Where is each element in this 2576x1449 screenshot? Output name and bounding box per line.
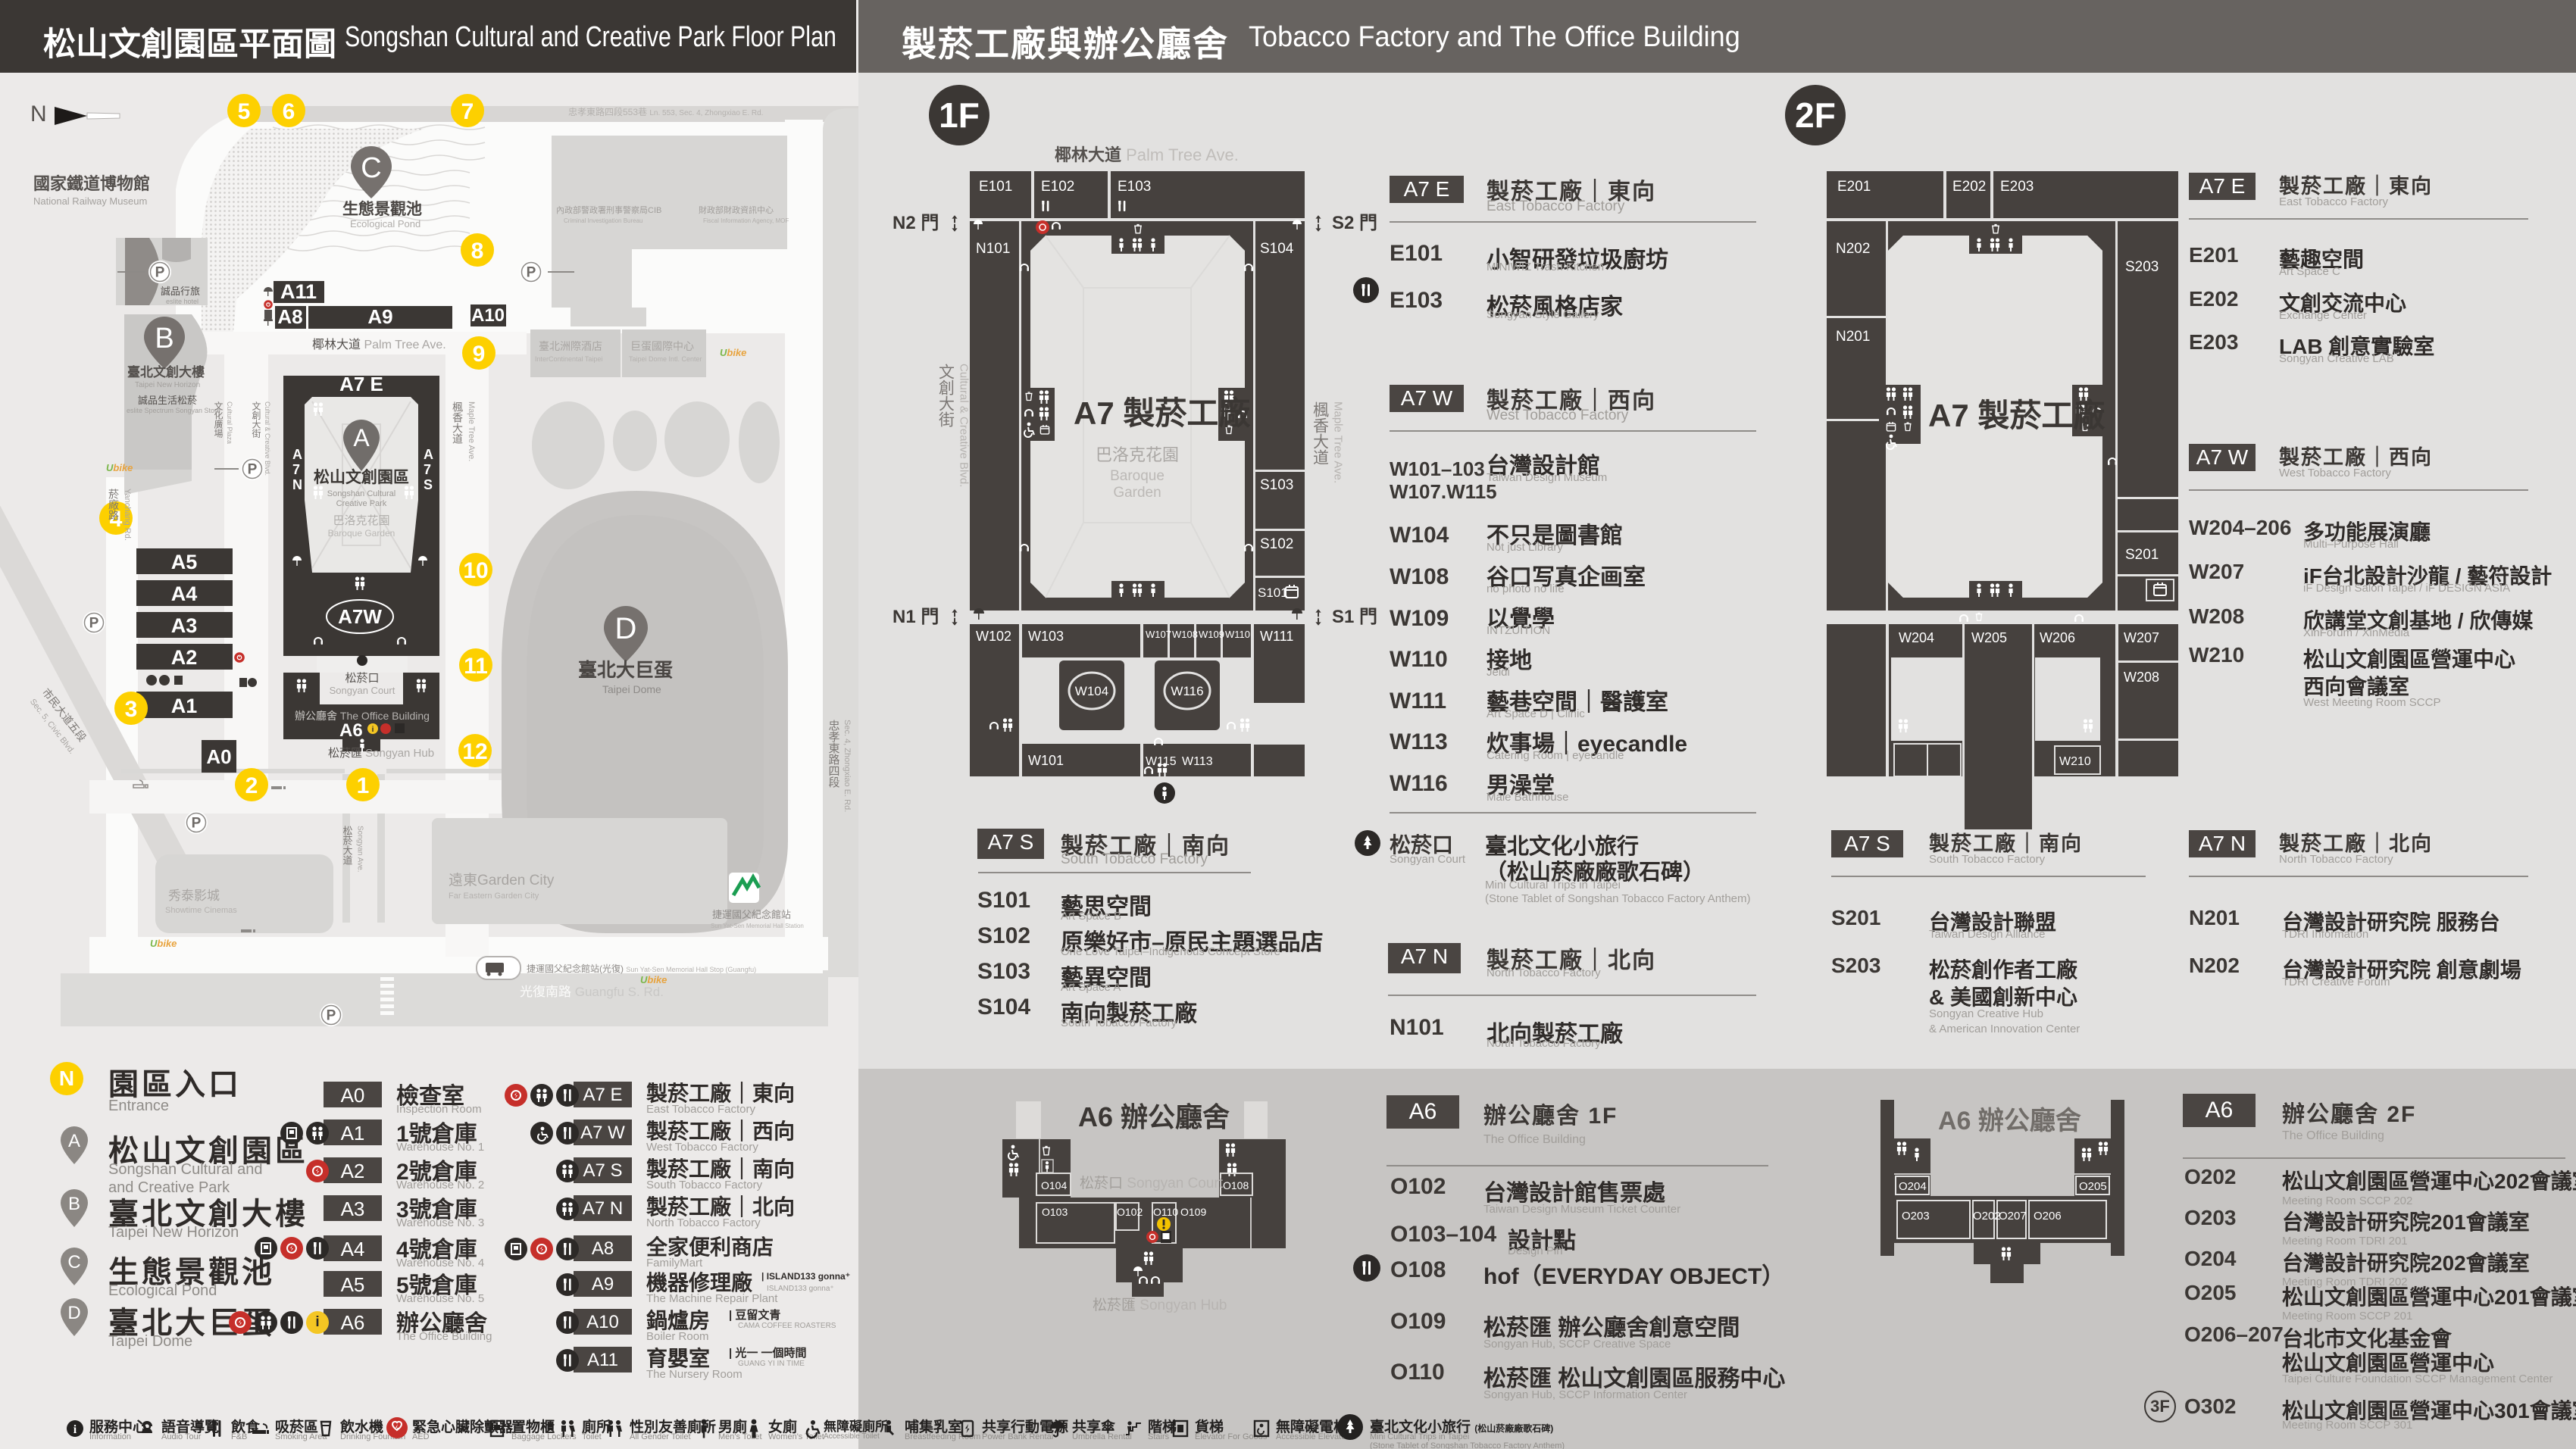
svg-text:S101: S101 xyxy=(1258,586,1288,600)
svg-text:5: 5 xyxy=(238,99,251,124)
svg-text:O103: O103 xyxy=(1042,1206,1068,1218)
svg-text:eslite hotel: eslite hotel xyxy=(166,298,199,305)
svg-text:W207: W207 xyxy=(2124,630,2159,645)
svg-text:Baroque Garden: Baroque Garden xyxy=(328,528,395,539)
svg-text:12: 12 xyxy=(462,739,487,764)
svg-text:Songyan Ave.: Songyan Ave. xyxy=(356,826,364,873)
svg-text:捷運國父紀念館站: 捷運國父紀念館站 xyxy=(712,909,791,920)
svg-text:W205: W205 xyxy=(1971,630,2007,645)
svg-text:O109: O109 xyxy=(1180,1206,1206,1218)
svg-text:O206: O206 xyxy=(2034,1210,2062,1223)
svg-text:7: 7 xyxy=(424,462,431,477)
svg-text:松菸大道: 松菸大道 xyxy=(342,826,353,865)
svg-text:文創大街: 文創大街 xyxy=(251,401,261,438)
svg-text:C: C xyxy=(361,152,381,184)
svg-text:Far Eastern Garden City: Far Eastern Garden City xyxy=(449,892,539,901)
svg-text:N202: N202 xyxy=(1836,241,1870,257)
svg-text:N1 門: N1 門 xyxy=(893,607,939,627)
svg-text:Taipei Dome Intl. Center: Taipei Dome Intl. Center xyxy=(629,355,702,363)
svg-text:A3: A3 xyxy=(171,614,198,637)
svg-text:國家鐵道博物館: 國家鐵道博物館 xyxy=(33,174,150,193)
svg-text:S203: S203 xyxy=(2125,259,2159,275)
svg-text:Songyan Court: Songyan Court xyxy=(330,685,395,696)
svg-text:A: A xyxy=(292,447,302,462)
svg-text:O204: O204 xyxy=(1899,1180,1927,1193)
svg-text:S2 門: S2 門 xyxy=(1332,213,1377,233)
svg-text:O202: O202 xyxy=(1973,1210,2001,1223)
svg-text:W208: W208 xyxy=(2124,670,2159,685)
svg-text:W107: W107 xyxy=(1146,629,1171,640)
svg-text:秀泰影城: 秀泰影城 xyxy=(168,888,220,903)
svg-text:D: D xyxy=(67,1303,80,1323)
svg-text:忠孝東路四段: 忠孝東路四段 xyxy=(827,720,840,788)
svg-text:O104: O104 xyxy=(1041,1179,1067,1191)
svg-text:S103: S103 xyxy=(1260,477,1293,493)
svg-text:B: B xyxy=(155,323,174,354)
svg-text:N2 門: N2 門 xyxy=(893,213,939,233)
svg-text:松菸口: 松菸口 xyxy=(345,672,379,685)
svg-text:N: N xyxy=(30,101,47,126)
svg-text:2F: 2F xyxy=(1795,95,1836,135)
svg-text:W113: W113 xyxy=(1182,755,1213,768)
svg-text:A10: A10 xyxy=(471,305,505,326)
svg-text:Cultural & Creative Blvd.: Cultural & Creative Blvd. xyxy=(264,401,271,476)
svg-text:巴洛克花園: 巴洛克花園 xyxy=(333,514,389,527)
svg-text:Songshan Cultural: Songshan Cultural xyxy=(327,489,396,498)
svg-text:A7 製菸工廠: A7 製菸工廠 xyxy=(1074,395,1250,431)
svg-text:3: 3 xyxy=(125,697,138,722)
svg-text:1: 1 xyxy=(357,773,370,798)
svg-text:松菸匯 Songyan Hub: 松菸匯 Songyan Hub xyxy=(1093,1297,1227,1313)
svg-text:E202: E202 xyxy=(1952,179,1986,195)
svg-text:Creative Park: Creative Park xyxy=(336,499,387,508)
svg-text:A8: A8 xyxy=(277,305,302,328)
svg-text:N: N xyxy=(292,477,302,492)
svg-text:A6 辦公廳舍: A6 辦公廳舍 xyxy=(1938,1106,2081,1135)
svg-text:S1 門: S1 門 xyxy=(1332,607,1377,627)
svg-text:楓香大道: 楓香大道 xyxy=(1311,401,1330,465)
svg-text:巨蛋國際中心: 巨蛋國際中心 xyxy=(630,340,694,352)
svg-text:巴洛克花園: 巴洛克花園 xyxy=(1096,445,1179,464)
svg-text:i: i xyxy=(73,1423,77,1436)
svg-text:A6: A6 xyxy=(339,720,363,741)
svg-text:S102: S102 xyxy=(1260,536,1293,552)
svg-text:Taipei Dome: Taipei Dome xyxy=(602,683,661,695)
svg-text:O102: O102 xyxy=(1117,1206,1143,1218)
svg-text:W111: W111 xyxy=(1260,629,1293,644)
svg-text:11: 11 xyxy=(464,654,488,679)
svg-text:內政部警政署刑事警察局CIB: 內政部警政署刑事警察局CIB xyxy=(556,205,661,215)
svg-text:Showtime Cinemas: Showtime Cinemas xyxy=(165,906,237,915)
svg-text:E203: E203 xyxy=(2000,179,2034,195)
svg-text:W109: W109 xyxy=(1199,629,1224,640)
svg-text:2: 2 xyxy=(245,773,258,798)
svg-text:A2: A2 xyxy=(171,646,198,669)
svg-text:A5: A5 xyxy=(171,551,198,573)
svg-text:A4: A4 xyxy=(171,582,198,605)
svg-text:Ecological Pond: Ecological Pond xyxy=(350,218,420,230)
svg-text:誠品生活松菸: 誠品生活松菸 xyxy=(138,395,197,406)
svg-text:S104: S104 xyxy=(1260,241,1294,257)
svg-text:椰林大道 Palm Tree Ave.: 椰林大道 Palm Tree Ave. xyxy=(1055,145,1239,164)
svg-text:S201: S201 xyxy=(2125,547,2159,563)
svg-text:文創大街: 文創大街 xyxy=(937,364,955,427)
svg-text:遠東Garden City: 遠東Garden City xyxy=(449,872,555,888)
svg-text:A6 辦公廳舍: A6 辦公廳舍 xyxy=(1078,1101,1230,1132)
svg-text:臺北大巨蛋: 臺北大巨蛋 xyxy=(578,660,673,681)
svg-text:松山文創園區: 松山文創園區 xyxy=(314,468,409,486)
svg-text:A7 製菸工廠: A7 製菸工廠 xyxy=(1928,398,2105,433)
svg-text:松菸匯 Songyan Hub: 松菸匯 Songyan Hub xyxy=(328,747,434,760)
svg-text:Taipei New Horizon: Taipei New Horizon xyxy=(135,381,200,389)
svg-text:E102: E102 xyxy=(1041,179,1074,195)
svg-text:E201: E201 xyxy=(1837,179,1871,195)
svg-text:eslite Spectrum Songyan Store: eslite Spectrum Songyan Store xyxy=(127,407,220,414)
svg-text:W110: W110 xyxy=(1225,629,1250,640)
svg-text:National Railway Museum: National Railway Museum xyxy=(33,195,147,207)
svg-text:W210: W210 xyxy=(2059,755,2091,768)
svg-text:Maple Tree Ave.: Maple Tree Ave. xyxy=(1332,401,1345,483)
svg-text:O207: O207 xyxy=(1999,1210,2027,1223)
svg-text:O110: O110 xyxy=(1153,1206,1178,1218)
svg-text:O205: O205 xyxy=(2079,1180,2107,1193)
svg-text:D: D xyxy=(615,612,637,645)
svg-text:楓香大道: 楓香大道 xyxy=(452,401,464,445)
svg-text:9: 9 xyxy=(473,342,486,367)
svg-text:Cultural Plaza: Cultural Plaza xyxy=(226,401,233,444)
svg-text:S: S xyxy=(424,477,433,492)
svg-text:Baroque: Baroque xyxy=(1110,468,1165,484)
svg-text:A1: A1 xyxy=(171,695,198,717)
svg-text:文化廣場: 文化廣場 xyxy=(213,401,224,439)
svg-text:B: B xyxy=(68,1194,80,1214)
svg-text:O203: O203 xyxy=(1902,1210,1930,1223)
svg-text:W108: W108 xyxy=(1172,629,1198,640)
svg-text:A: A xyxy=(424,447,433,462)
svg-text:Yanchang Rd.: Yanchang Rd. xyxy=(123,489,132,541)
svg-text:Garden: Garden xyxy=(1113,485,1161,501)
svg-text:W116: W116 xyxy=(1171,684,1203,698)
svg-text:A9: A9 xyxy=(367,305,392,328)
svg-text:O108: O108 xyxy=(1223,1179,1249,1191)
svg-text:7: 7 xyxy=(292,462,300,477)
svg-text:W204: W204 xyxy=(1899,630,1934,645)
svg-text:E101: E101 xyxy=(979,179,1012,195)
svg-text:W103: W103 xyxy=(1028,629,1064,644)
svg-text:A7W: A7W xyxy=(338,605,382,628)
svg-text:A: A xyxy=(353,424,370,451)
svg-text:Cultural & Creative Blvd.: Cultural & Creative Blvd. xyxy=(958,364,971,487)
svg-text:A7 E: A7 E xyxy=(339,373,383,395)
svg-text:財政部財政資訊中心: 財政部財政資訊中心 xyxy=(699,205,774,215)
svg-text:光復南路 Guangfu S. Rd.: 光復南路 Guangfu S. Rd. xyxy=(520,985,664,999)
svg-text:E103: E103 xyxy=(1118,179,1151,195)
svg-text:8: 8 xyxy=(471,239,484,264)
svg-text:A11: A11 xyxy=(280,280,317,303)
svg-text:Sun Yat-Sen Memorial Hall Stat: Sun Yat-Sen Memorial Hall Station xyxy=(711,923,804,929)
svg-text:1F: 1F xyxy=(939,95,980,135)
svg-text:椰林大道 Palm Tree Ave.: 椰林大道 Palm Tree Ave. xyxy=(312,338,446,351)
svg-text:W206: W206 xyxy=(2040,630,2075,645)
svg-text:臺北文創大樓: 臺北文創大樓 xyxy=(127,364,205,379)
svg-text:松菸口 Songyan Court: 松菸口 Songyan Court xyxy=(1080,1175,1224,1191)
svg-text:Fiscal Information Agency, MOF: Fiscal Information Agency, MOF xyxy=(703,217,789,224)
svg-text:W101: W101 xyxy=(1028,753,1064,768)
svg-text:7: 7 xyxy=(461,99,474,124)
svg-text:N101: N101 xyxy=(976,241,1010,257)
svg-text:6: 6 xyxy=(283,99,295,124)
svg-text:Maple Tree Ave.: Maple Tree Ave. xyxy=(467,401,476,461)
svg-text:臺北洲際酒店: 臺北洲際酒店 xyxy=(539,340,602,352)
svg-text:C: C xyxy=(67,1252,80,1273)
svg-text:W104: W104 xyxy=(1075,684,1108,698)
svg-text:10: 10 xyxy=(463,558,488,583)
svg-text:Criminal Investigation Bureau: Criminal Investigation Bureau xyxy=(564,217,643,224)
svg-text:Sec. 4, Zhongxiao E. Rd.: Sec. 4, Zhongxiao E. Rd. xyxy=(843,720,852,812)
svg-text:N201: N201 xyxy=(1836,329,1870,345)
svg-text:A: A xyxy=(68,1131,80,1151)
svg-text:菸廠路: 菸廠路 xyxy=(108,489,120,520)
svg-text:生態景觀池: 生態景觀池 xyxy=(342,200,422,218)
svg-text:誠品行旅: 誠品行旅 xyxy=(161,286,200,297)
svg-text:A0: A0 xyxy=(206,745,231,768)
svg-text:W102: W102 xyxy=(976,629,1011,644)
svg-text:i: i xyxy=(372,726,374,734)
svg-text:InterContinental Taipei: InterContinental Taipei xyxy=(535,355,602,363)
